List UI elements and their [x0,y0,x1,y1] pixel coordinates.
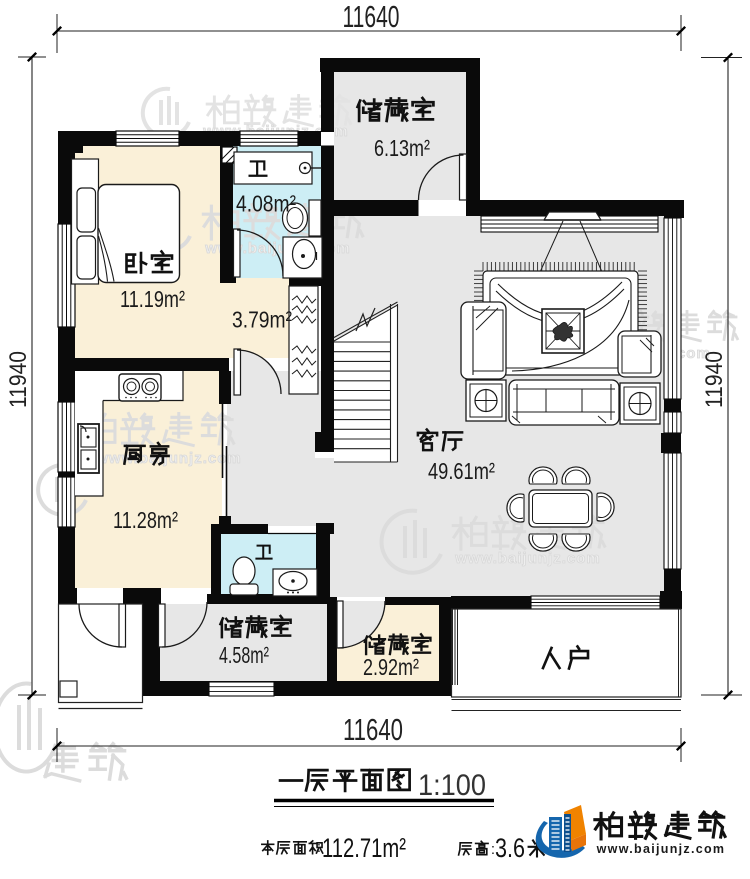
svg-text:11.19m²: 11.19m² [120,286,185,312]
svg-text:4.08m²: 4.08m² [236,191,296,217]
svg-text:www.baijunjz.com: www.baijunjz.com [596,842,726,856]
svg-text:6.13m²: 6.13m² [374,135,430,161]
svg-text::: : [317,839,321,856]
svg-text:www.baijunjz.com: www.baijunjz.com [95,450,241,467]
svg-text:11.28m²: 11.28m² [113,507,178,533]
svg-text:11640: 11640 [343,0,400,34]
svg-text:2.92m²: 2.92m² [363,654,419,680]
svg-text:3.79m²: 3.79m² [232,307,292,333]
svg-text:11640: 11640 [343,712,403,747]
svg-text:1:100: 1:100 [418,769,486,802]
svg-text:3.6: 3.6 [495,833,525,863]
svg-text:11940: 11940 [5,351,32,408]
svg-text:49.61m²: 49.61m² [428,458,495,484]
svg-text:4.58m²: 4.58m² [219,642,269,668]
svg-text:112.71m²: 112.71m² [322,833,406,863]
svg-text:11940: 11940 [701,351,728,408]
svg-text:www.baijunjz.com: www.baijunjz.com [454,550,600,567]
